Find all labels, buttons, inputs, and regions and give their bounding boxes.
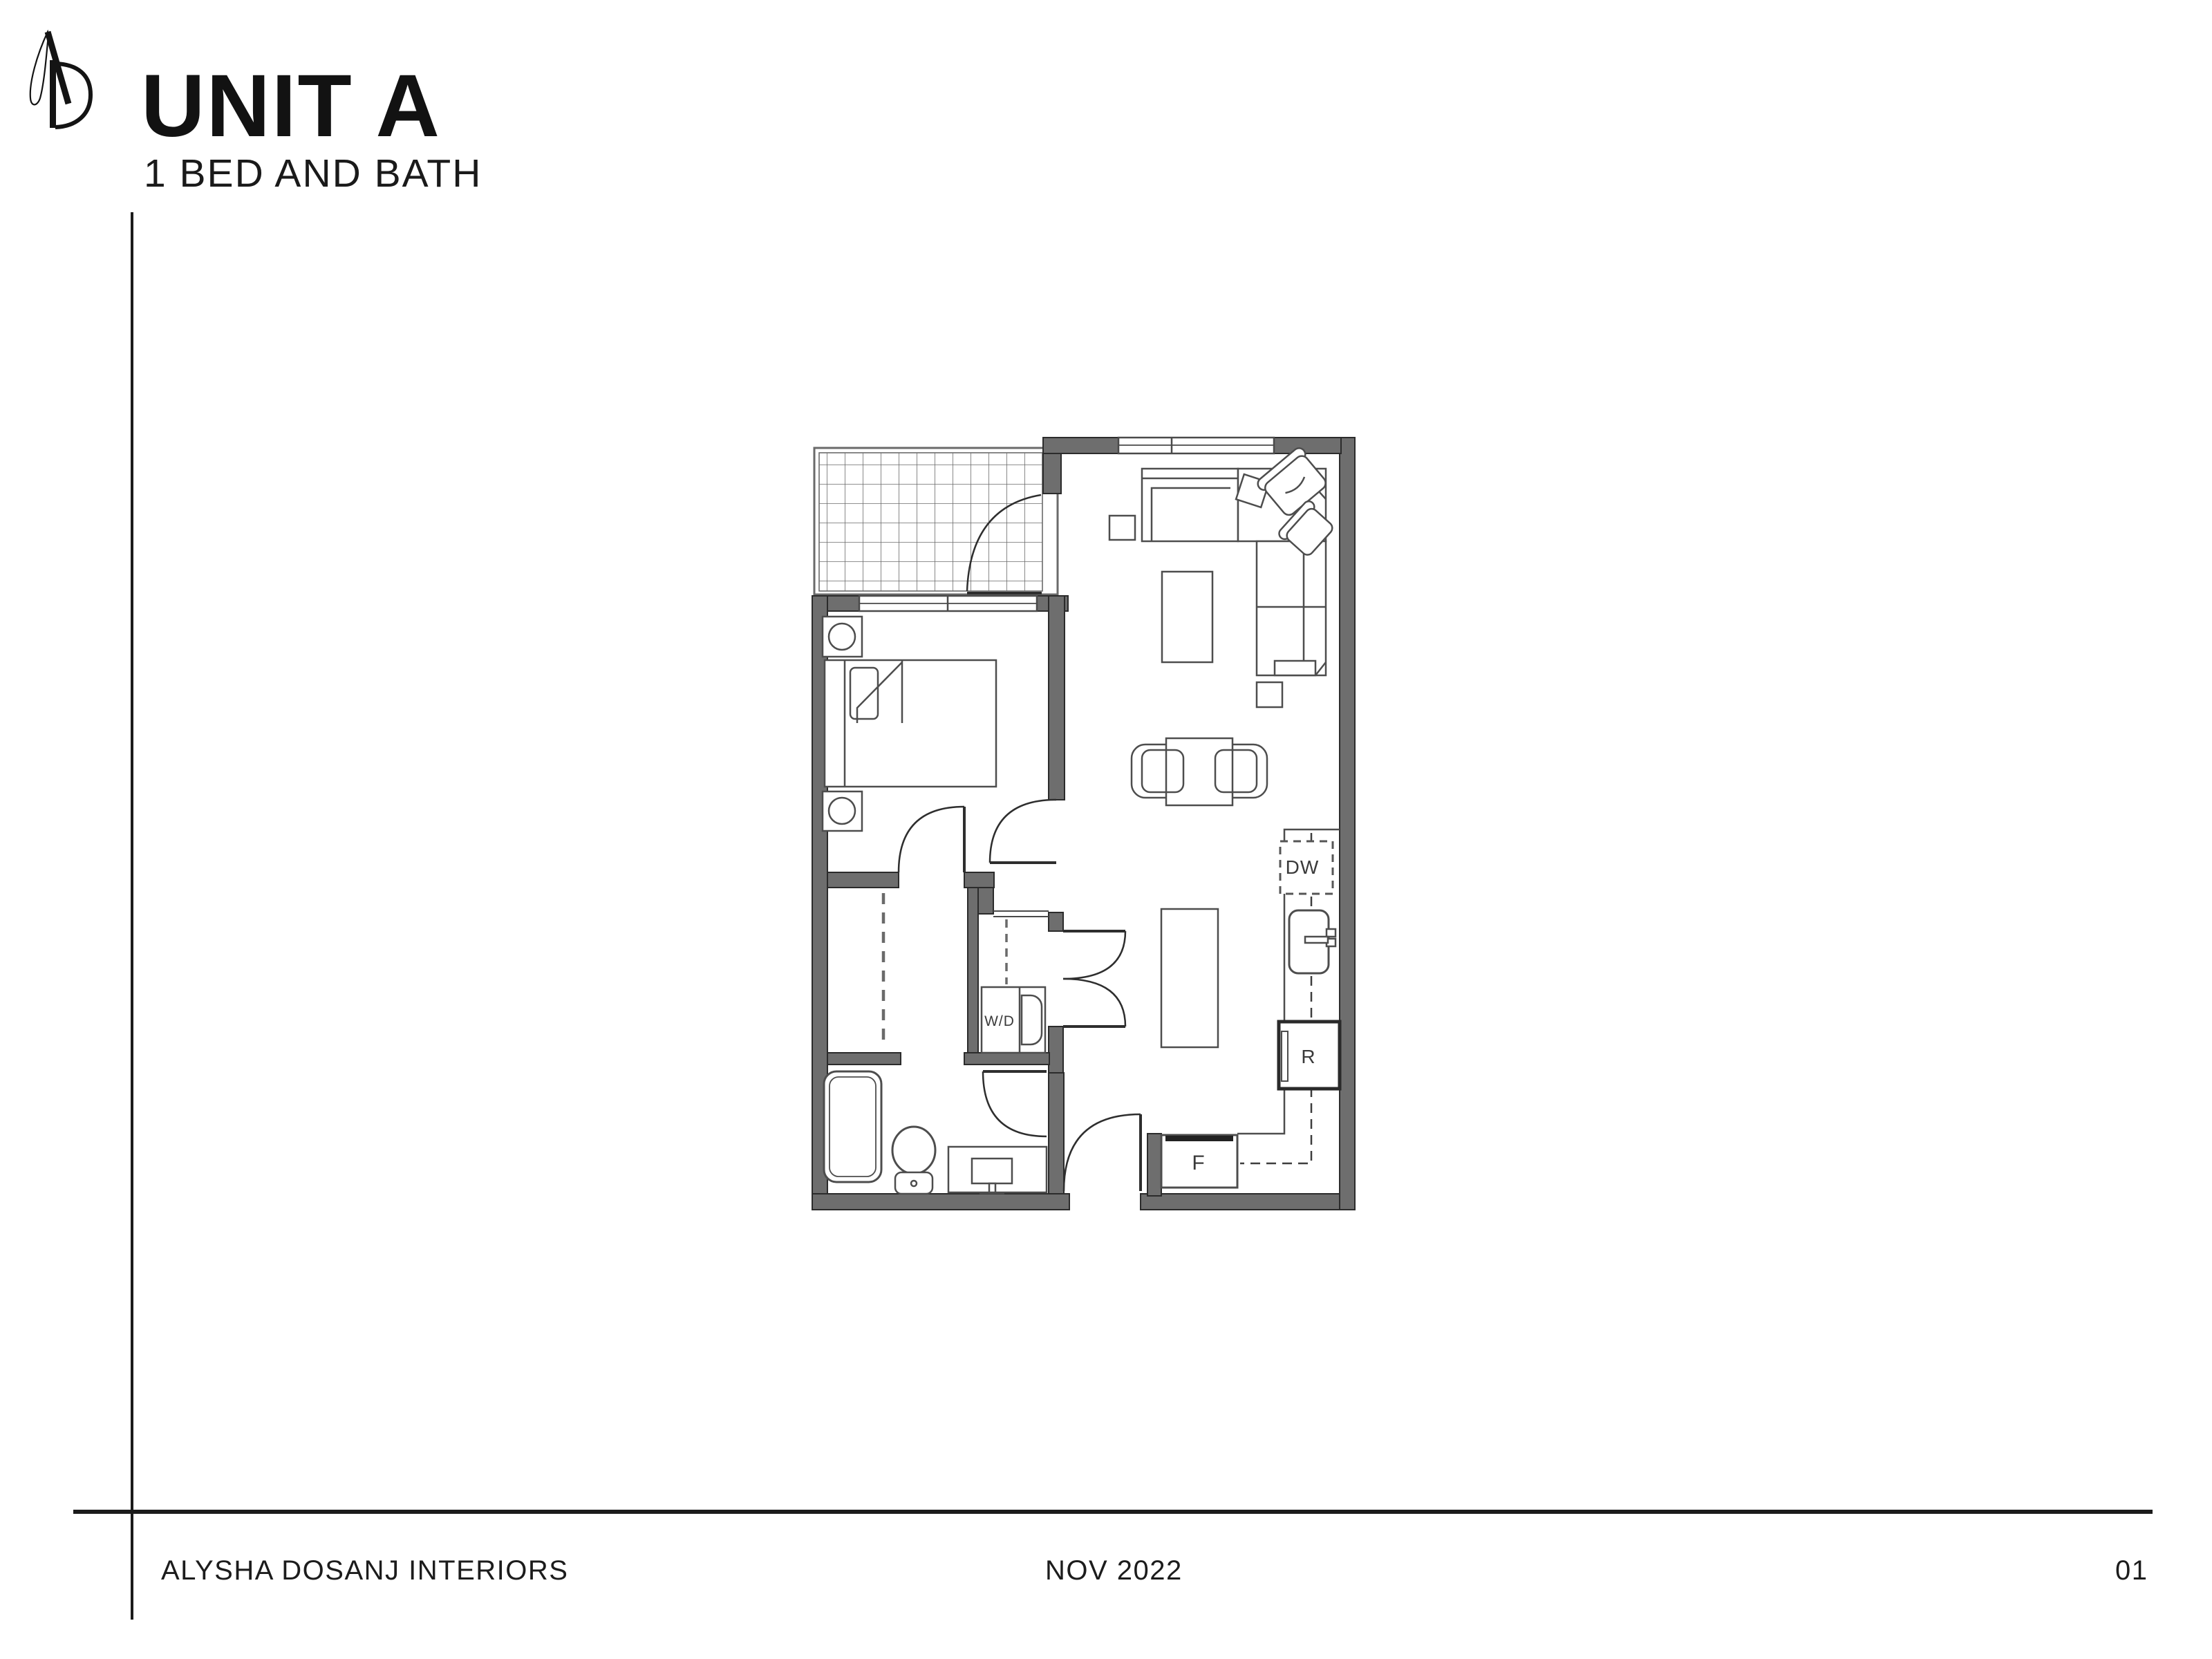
sectional-armrest — [1275, 661, 1315, 675]
toilet-bowl — [892, 1127, 935, 1174]
wall-bath-top-right — [964, 1053, 1049, 1065]
wall-wd-top-jamb — [1049, 912, 1063, 931]
portfolio-page: DW W/D R F UNIT A 1 BED AND BATH ALYSHA … — [0, 0, 2212, 1659]
wall-entry-jamb — [1147, 1134, 1161, 1196]
closet-door-arc — [899, 807, 964, 872]
dining-set — [1132, 738, 1267, 805]
bathtub — [824, 1071, 881, 1182]
wall-bed-living — [1049, 596, 1065, 800]
vanity — [948, 1147, 1047, 1192]
footer-page-number: 01 — [2115, 1555, 2148, 1586]
wall-bed-bottom — [827, 872, 899, 888]
dishwasher-label: DW — [1286, 856, 1320, 878]
toilet-flush — [911, 1181, 917, 1186]
wall-bed-bottom-jamb — [964, 872, 994, 888]
left-margin-rule — [131, 212, 133, 1620]
wall-bottom-left — [812, 1194, 1069, 1210]
range-label: R — [1301, 1046, 1315, 1067]
sectional-chaise — [1257, 541, 1326, 675]
wall-hall-corner — [978, 888, 993, 914]
footer-date: NOV 2022 — [1045, 1555, 1183, 1586]
bathroom-door-arc — [983, 1071, 1047, 1136]
wall-top-left-seg — [1043, 438, 1118, 453]
faucet-spout — [1305, 937, 1328, 943]
floor-plan: DW W/D R F — [812, 438, 1355, 1210]
wall-closet-divider — [968, 888, 978, 1053]
wd-door-bottom-arc — [1063, 979, 1125, 1027]
wall-wd-bottom-jamb — [1049, 1027, 1063, 1073]
footer-studio-name: ALYSHA DOSANJ INTERIORS — [161, 1555, 568, 1586]
wall-bottom-right — [1141, 1194, 1340, 1210]
wall-bath-top-left — [827, 1053, 901, 1065]
wall-bath-right — [1049, 1073, 1064, 1194]
coffee-table — [1162, 572, 1212, 662]
washer-dryer-label: W/D — [984, 1013, 1015, 1029]
vanity-sink-drain — [989, 1183, 995, 1192]
page-subtitle: 1 BED AND BATH — [144, 151, 482, 196]
dining-table — [1166, 738, 1232, 805]
wd-door-top-arc — [1063, 931, 1125, 979]
wd-closet-thin-wall — [993, 911, 1049, 917]
living-furniture — [1109, 446, 1337, 707]
ad-monogram-icon — [30, 32, 91, 128]
faucet-base — [1327, 929, 1335, 937]
kitchen — [1161, 829, 1340, 1188]
page-title: UNIT A — [141, 58, 441, 156]
entry-door-arc — [1064, 1114, 1141, 1191]
fridge-label: F — [1192, 1152, 1205, 1174]
page-canvas: DW W/D R F — [0, 0, 2212, 1659]
side-table-right — [1257, 682, 1282, 707]
wall-balcony-stub — [1043, 453, 1061, 494]
wall-right — [1340, 438, 1355, 1210]
wall-top-right-seg — [1274, 438, 1341, 453]
bedroom-furniture — [823, 617, 996, 831]
balcony — [814, 448, 1058, 594]
bedroom-door-arc — [990, 800, 1056, 863]
range-handle — [1282, 1031, 1288, 1081]
side-table-left — [1109, 516, 1135, 540]
balcony-tile-grid — [819, 453, 1042, 591]
bathroom — [824, 1071, 1047, 1194]
wall-bed-window-left — [827, 596, 859, 611]
footer-rule — [73, 1510, 2153, 1514]
kitchen-island — [1161, 909, 1218, 1047]
sofa — [1142, 469, 1238, 541]
